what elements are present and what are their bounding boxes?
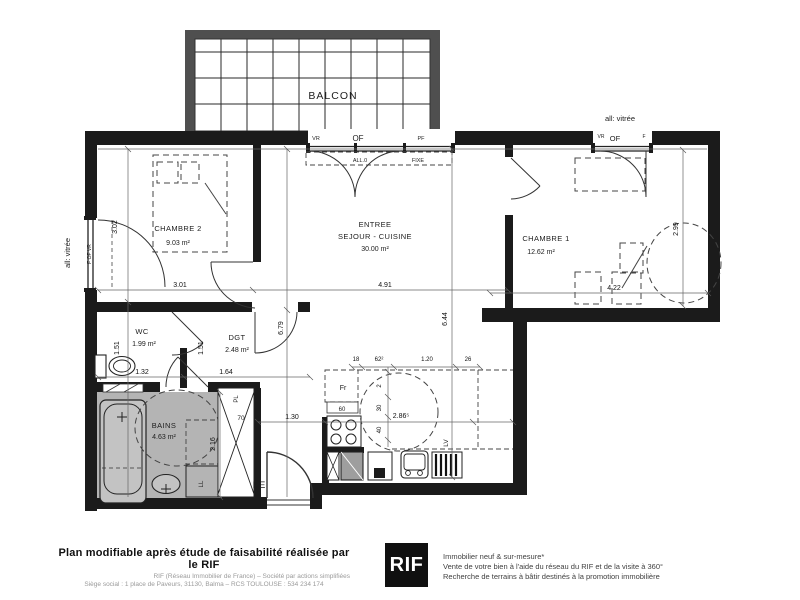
ch1-window-f-label: F xyxy=(642,134,645,140)
main-window-allege-label: ALL.0 xyxy=(353,158,367,164)
bains-area: 4.63 m² xyxy=(152,434,176,441)
ch1-window-of-label: OF xyxy=(610,134,621,143)
cooktop xyxy=(327,416,361,447)
ch1-furniture xyxy=(575,158,721,304)
dim-bains-h: 2.16 xyxy=(210,437,217,451)
closet: PL 70 xyxy=(218,388,254,497)
dishwasher: LV xyxy=(432,439,462,478)
wc-area: 1.99 m² xyxy=(132,341,156,348)
furniture xyxy=(153,155,721,304)
dgt-area: 2.48 m² xyxy=(225,347,249,354)
kitchen: Fr 60 LV xyxy=(325,370,513,480)
entry-door-sill xyxy=(267,500,310,505)
dim-ch2-w: 3.01 xyxy=(173,282,187,289)
dim-sejour-h2: 6.79 xyxy=(278,321,285,335)
ch1-area: 12.62 m² xyxy=(527,249,555,256)
bains-name: BAINS xyxy=(152,421,177,430)
kitchen-sink xyxy=(401,451,428,478)
left-window-note: all: vitrée xyxy=(63,238,72,268)
ch1-name: CHAMBRE 1 xyxy=(522,234,569,243)
entry-door-swing xyxy=(267,452,313,498)
dim-k120: 1.20 xyxy=(421,357,433,363)
footer-company-line: RIF (Réseau Immobilier de France) – Soci… xyxy=(58,573,350,580)
bathroom-sink xyxy=(152,475,180,495)
main-window-opening xyxy=(308,129,455,146)
kitchen-turning-circle xyxy=(360,373,438,451)
wc-name: WC xyxy=(135,327,148,336)
toilet xyxy=(95,355,135,378)
floor-plan-drawing: BALCON VR OF PF xyxy=(0,0,800,545)
sejour-name-1: ENTREE xyxy=(359,220,392,229)
dim-dgt-h: 1.51 xyxy=(198,341,205,355)
ch1-door-swing xyxy=(511,158,540,199)
footer-right-block: Immobilier neuf & sur-mesure* Vente de v… xyxy=(443,552,743,582)
ch2-name: CHAMBRE 2 xyxy=(154,224,201,233)
main-window-fixe-label: FIXE xyxy=(412,158,425,164)
balcony-railing-grid xyxy=(195,39,430,131)
ch2-area: 9.03 m² xyxy=(166,240,190,247)
dim-k40: 40 xyxy=(377,426,383,433)
closet-width: 70 xyxy=(237,415,245,422)
footer-address-line: Siège social : 1 place de Paveurs, 31130… xyxy=(58,581,350,588)
footer-service-2: Vente de votre bien à l'aide du réseau d… xyxy=(443,562,743,572)
main-window-vr-label: VR xyxy=(312,136,320,142)
balcony: BALCON xyxy=(185,30,440,137)
dim-ch2-h: 3.02 xyxy=(112,220,119,234)
left-window-labels: F OF VR xyxy=(87,244,93,264)
dim-k2: 2 xyxy=(377,384,383,388)
fridge-label: Fr xyxy=(340,385,347,392)
dim-k18: 18 xyxy=(353,357,360,363)
footer-service-1: Immobilier neuf & sur-mesure* xyxy=(443,552,743,562)
footer-left-block: Plan modifiable après étude de faisabili… xyxy=(58,547,350,588)
footer-headline: Plan modifiable après étude de faisabili… xyxy=(58,547,350,571)
ch2-door-swing xyxy=(211,262,255,308)
dgt-name: DGT xyxy=(228,333,245,342)
ch2-bed xyxy=(153,155,227,252)
ch1-window-vr-label: VR xyxy=(598,134,605,140)
oven xyxy=(341,452,363,480)
floor-plan-page: BALCON VR OF PF xyxy=(0,0,800,600)
ch1-window: all: vitrée VR OF F xyxy=(591,114,653,197)
cabinet-cross xyxy=(327,452,339,480)
bathroom: LL xyxy=(97,384,222,503)
dim-kitchen-radius: 2.86⁵ xyxy=(393,413,410,420)
main-window-of-label: OF xyxy=(352,134,363,143)
main-window-pf-label: PF xyxy=(417,136,425,142)
rif-logo: RIF xyxy=(385,543,428,587)
footer: Plan modifiable après étude de faisabili… xyxy=(0,540,800,600)
washing-machine: LL xyxy=(186,466,220,497)
entry-door-label: PE xyxy=(253,480,266,491)
dim-k30: 30 xyxy=(377,404,383,411)
dim-sejour-w: 4.91 xyxy=(378,282,392,289)
washing-machine-label: LL xyxy=(199,480,205,487)
dim-k62: 62² xyxy=(375,357,384,363)
sejour-area: 30.00 m² xyxy=(361,246,389,253)
bathtub xyxy=(100,400,146,503)
balcony-label: BALCON xyxy=(308,90,357,102)
footer-service-3: Recherche de terrains à bâtir destinés à… xyxy=(443,572,743,582)
dim-wc-h: 1.51 xyxy=(114,341,121,355)
dim-k26: 26 xyxy=(465,357,472,363)
dim-hall-w: 1.30 xyxy=(285,414,299,421)
dim-wc-w: 1.32 xyxy=(135,369,149,376)
sink-cabinet xyxy=(368,452,392,480)
dim-ch1-w: 4.22 xyxy=(607,285,621,292)
closet-label: PL xyxy=(234,395,240,403)
dim-ch1-h: 2.99 xyxy=(673,222,680,236)
dim-dgt-w: 1.64 xyxy=(219,369,233,376)
dim-sejour-h: 6.44 xyxy=(442,312,449,326)
dgt-door-swing xyxy=(255,312,297,353)
ch1-window-note: all: vitrée xyxy=(605,114,635,123)
sejour-name-2: SEJOUR - CUISINE xyxy=(338,232,412,241)
fridge-width: 60 xyxy=(339,407,346,413)
dishwasher-label: LV xyxy=(443,439,450,447)
